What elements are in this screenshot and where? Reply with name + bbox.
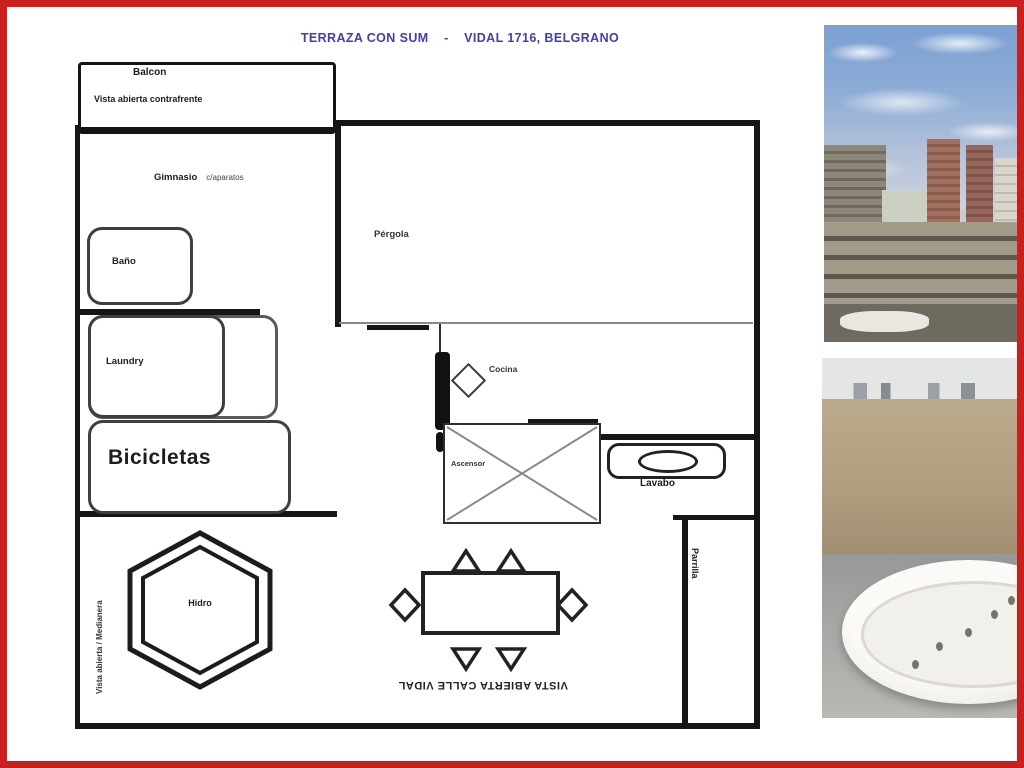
terrace-wall [822,399,1018,554]
grill-label: Parrilla [690,548,700,579]
gym-label: Gimnasioc/aparatos [154,172,244,183]
pergola-label: Pérgola [374,229,409,240]
street-strip [824,304,1018,342]
wall-grill-left [682,515,688,725]
building-foreground [824,222,1018,308]
wall-right-outer [754,120,760,729]
tub-jet-1 [936,642,943,651]
jacuzzi-photo [822,358,1018,718]
wall-left-outer [75,125,80,728]
gym-label-text: Gimnasio [154,172,197,183]
dining-table-icon [390,545,600,675]
sink-basin-icon [638,450,698,473]
tub-jet-3 [991,610,998,619]
balcony-label: Balcon [133,67,166,78]
wall-dash-segment [367,325,429,330]
wall-lavabo-top [597,434,755,440]
elevator-label: Ascensor [449,459,487,468]
bathroom-label: Baño [112,256,136,267]
wall-top-main-room [337,120,758,126]
white-vehicle [840,311,929,332]
kitchen-door-swing-icon [451,363,486,398]
elevator-room: Ascensor [443,423,601,524]
gym-note-text: c/aparatos [206,173,243,182]
sink-label: Lavabo [640,478,675,489]
sink-fixture [607,443,726,479]
hexagon-hydro-icon [120,525,280,695]
elevator-cross-icon [445,425,599,522]
page-title: TERRAZA CON SUM - VIDAL 1716, BELGRANO [140,31,780,45]
street-note-label: VISTA ABIERTA CALLE VIDAL [338,679,628,691]
line-main-room-bottom [339,322,753,324]
listing-image: TERRAZA CON SUM - VIDAL 1716, BELGRANO B… [0,0,1024,768]
city-view-photo [824,25,1018,342]
tub-jet-4 [1008,596,1015,605]
kitchen-label: Cocina [489,364,517,374]
hydro-label: Hidro [170,598,230,608]
bathroom-room [87,227,193,305]
balcony-note: Vista abierta contrafrente [94,94,202,104]
laundry-label: Laundry [106,356,143,367]
wall-bottom-outer [75,723,760,729]
photo2-skyline [822,383,1018,399]
bikes-label: Bicicletas [108,446,211,470]
side-note-label: Vista abierta / Medianera [95,522,104,694]
wall-left-main-room [335,120,341,327]
kitchen-door-bar [435,352,450,430]
